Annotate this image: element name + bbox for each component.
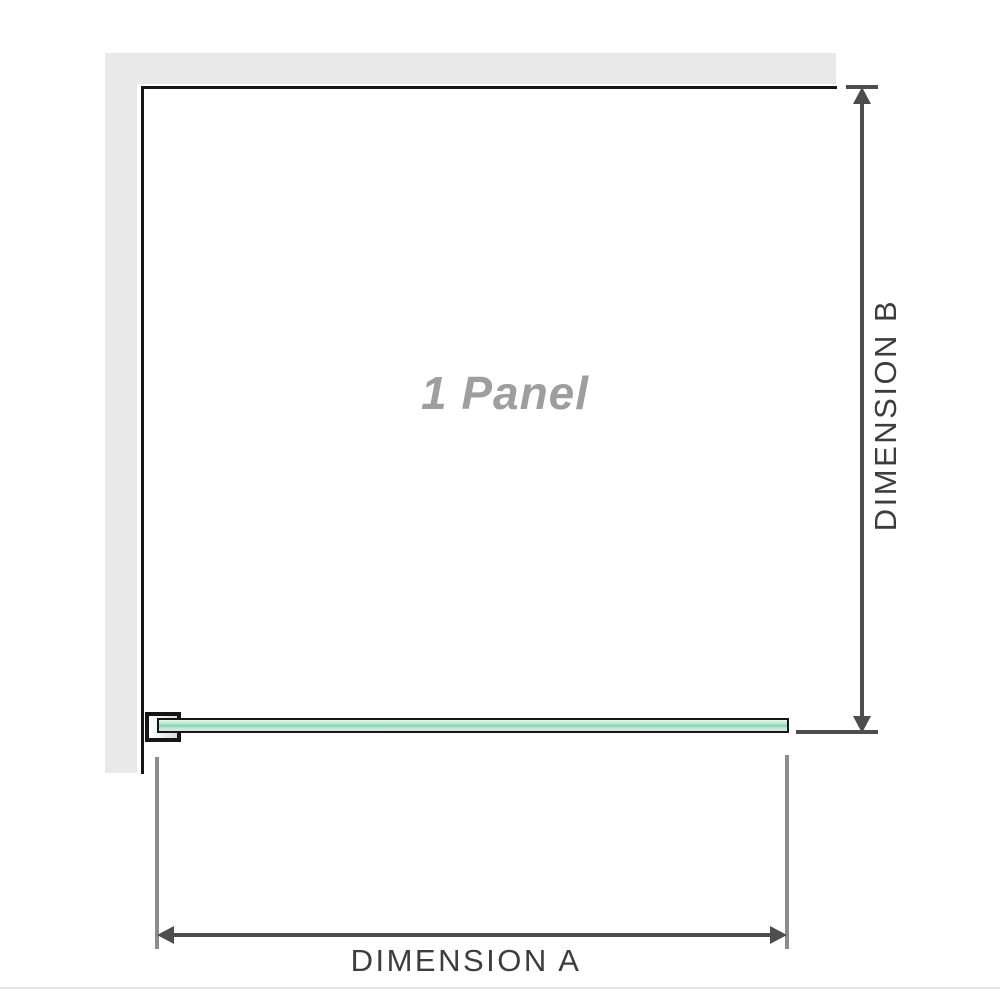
dimension-b-label: DIMENSION B xyxy=(868,265,904,565)
wall-top-band xyxy=(105,53,836,84)
panel-outline-top-line xyxy=(141,86,837,89)
arrowhead-down-icon xyxy=(853,716,871,733)
image-bottom-edge-line xyxy=(0,987,1000,989)
arrowhead-left-icon xyxy=(157,926,174,944)
dimension-a-extension-left xyxy=(155,757,159,949)
panel-count-label: 1 Panel xyxy=(355,366,655,420)
panel-dimension-diagram: 1 Panel DIMENSION B DIMENSION A xyxy=(0,0,1000,1000)
arrowhead-right-icon xyxy=(770,926,787,944)
arrowhead-up-icon xyxy=(853,87,871,104)
glass-panel-bar xyxy=(157,718,789,733)
dimension-a-line xyxy=(172,933,773,937)
wall-left-band xyxy=(105,53,137,773)
dimension-b-line xyxy=(860,100,864,718)
dimension-a-extension-right xyxy=(785,755,789,949)
dimension-a-label: DIMENSION A xyxy=(266,943,666,979)
panel-outline-left-line xyxy=(141,86,144,774)
